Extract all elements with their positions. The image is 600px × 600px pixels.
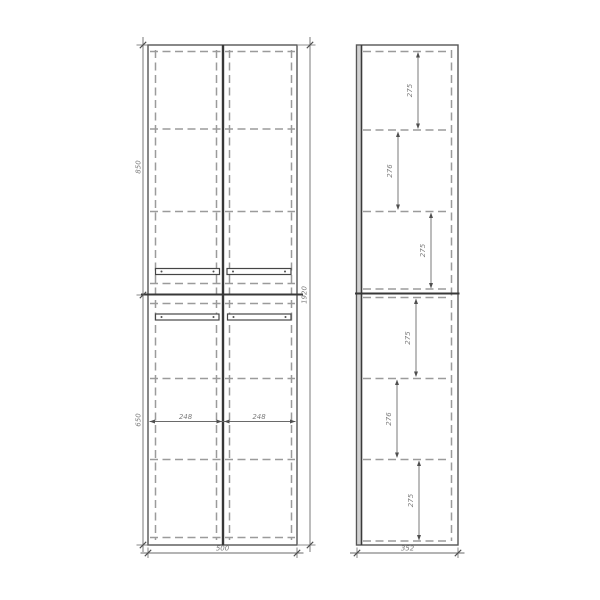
shelf-spacing-label-2: 276 bbox=[386, 164, 394, 178]
dim-overall-width: 500 bbox=[141, 545, 304, 559]
shelf-dim-6: 275 bbox=[407, 461, 421, 541]
shelf-spacing-label-4: 275 bbox=[404, 331, 412, 345]
side-outline bbox=[357, 45, 459, 545]
shelf-dim-2: 276 bbox=[386, 132, 400, 211]
dim-overall-width-label: 500 bbox=[216, 545, 230, 553]
cabinet-technical-drawing: 275 276 275 275 276 bbox=[0, 0, 600, 600]
dim-overall-depth: 352 bbox=[350, 545, 465, 559]
shelf-spacing-label-6: 275 bbox=[407, 493, 415, 507]
side-hidden-lines bbox=[363, 50, 452, 541]
dim-lower-section-label: 650 bbox=[135, 413, 143, 427]
front-view bbox=[141, 45, 303, 545]
handle-lower-left bbox=[156, 314, 220, 320]
drawing-canvas: 275 276 275 275 276 bbox=[0, 0, 600, 600]
handle-upper-left bbox=[156, 269, 220, 275]
handle-lower-right bbox=[228, 314, 292, 320]
dim-right-door-width-label: 248 bbox=[252, 413, 266, 421]
shelf-spacing-dimensions: 275 276 275 275 276 bbox=[385, 52, 433, 541]
shelf-dim-3: 275 bbox=[419, 213, 433, 289]
dim-overall-depth-label: 352 bbox=[401, 545, 415, 553]
shelf-dim-1: 275 bbox=[406, 52, 420, 129]
dim-overall-height: 1920 bbox=[298, 37, 316, 552]
shelf-spacing-label-5: 276 bbox=[385, 412, 393, 426]
dim-left-door-width-label: 248 bbox=[179, 413, 193, 421]
side-door-thickness-band bbox=[357, 46, 361, 545]
dim-overall-height-label: 1920 bbox=[301, 286, 309, 304]
shelf-spacing-label-1: 275 bbox=[406, 83, 414, 97]
handle-upper-right bbox=[227, 269, 291, 275]
shelf-dim-4: 275 bbox=[404, 299, 418, 378]
shelf-spacing-label-3: 275 bbox=[419, 243, 427, 257]
dim-upper-section-label: 850 bbox=[135, 160, 143, 174]
shelf-dim-5: 276 bbox=[385, 380, 399, 459]
side-view: 275 276 275 275 276 bbox=[355, 45, 460, 545]
